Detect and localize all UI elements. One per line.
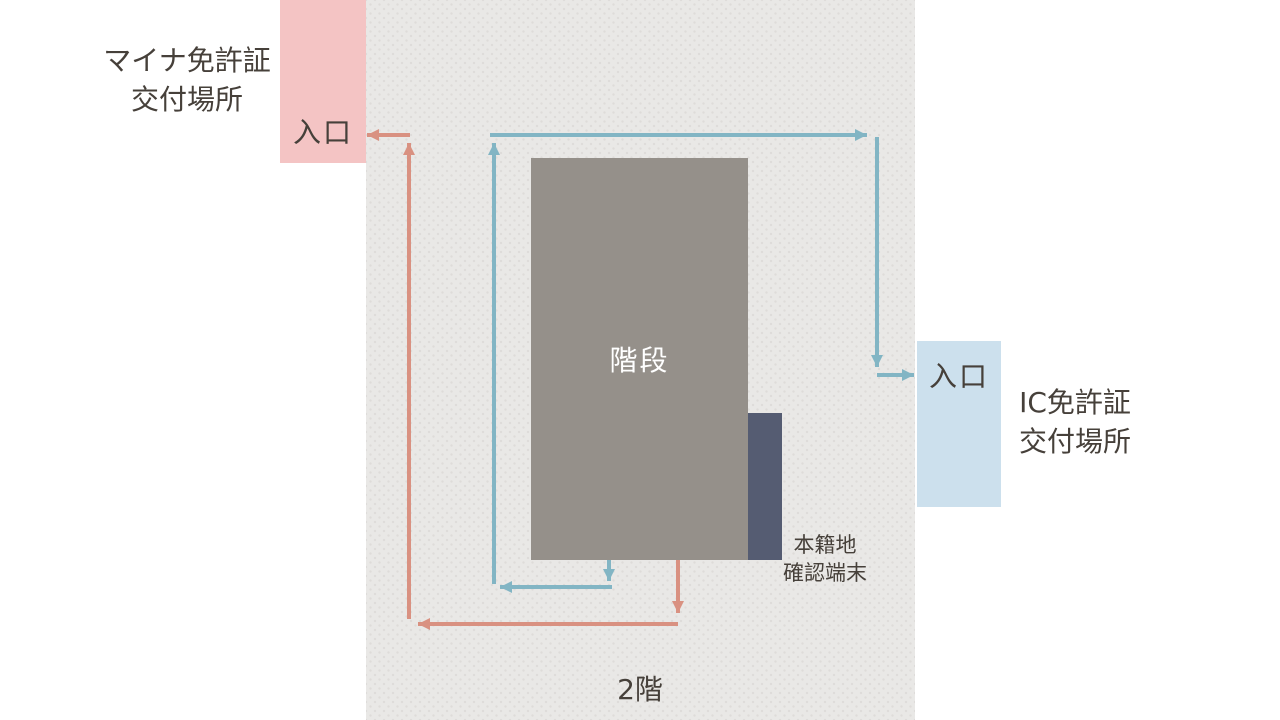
ic-entrance-label: 入口 [917, 355, 1001, 395]
ic-entrance-box: 入口 [917, 341, 1001, 507]
stairs-block: 階段 [531, 158, 748, 560]
ic-location-caption: IC免許証 交付場所 [1005, 384, 1145, 461]
ic-location-caption-line1: IC免許証 [1005, 384, 1145, 423]
floor-caption: 2階 [565, 671, 715, 710]
stairs-label: 階段 [609, 339, 669, 379]
myna-location-caption-line2: 交付場所 [80, 81, 294, 120]
myna-location-caption-line1: マイナ免許証 [80, 42, 294, 81]
terminal-caption: 本籍地 確認端末 [770, 531, 880, 588]
terminal-caption-line1: 本籍地 [770, 531, 880, 559]
terminal-caption-line2: 確認端末 [770, 559, 880, 587]
floor-map-canvas: 入口 入口 階段 マイナ免許証 交付場所 IC免許証 交付場所 本籍地 確認端末… [0, 0, 1280, 720]
myna-location-caption: マイナ免許証 交付場所 [80, 42, 294, 119]
ic-location-caption-line2: 交付場所 [1005, 423, 1145, 462]
